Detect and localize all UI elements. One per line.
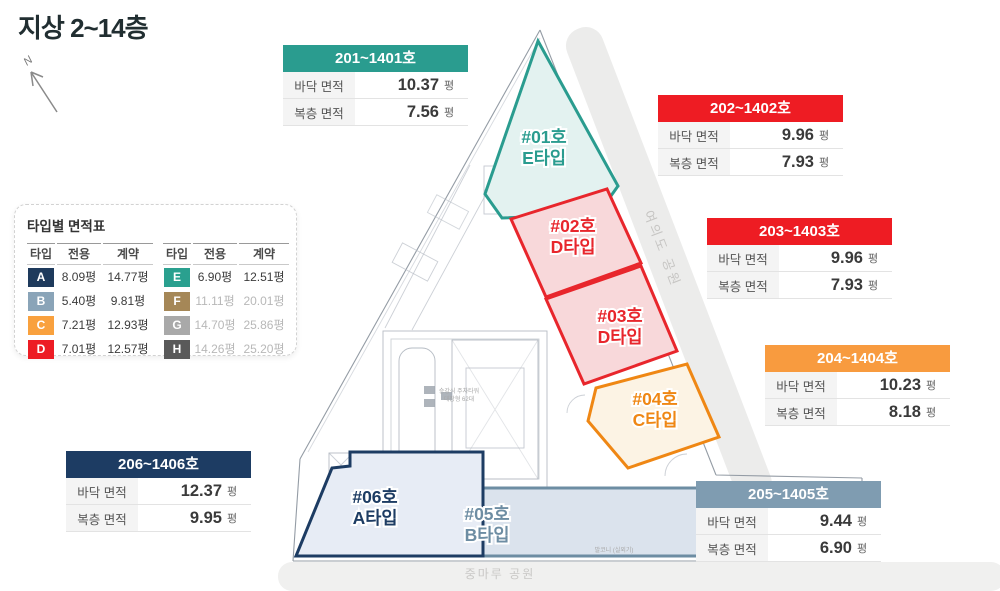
- type-chip-F: F: [164, 292, 190, 311]
- row-label: 바닥 면적: [66, 478, 138, 504]
- card-row: 복층 면적7.56평: [283, 99, 468, 126]
- card-row: 복층 면적7.93평: [658, 149, 843, 176]
- row-unit: 평: [444, 72, 468, 98]
- row-unit: 평: [857, 508, 881, 534]
- page-title: 지상 2~14층: [18, 8, 148, 45]
- col-type: 타입: [27, 243, 55, 265]
- row-label: 바닥 면적: [283, 72, 355, 98]
- row-label: 복층 면적: [696, 535, 768, 561]
- exclusive-area: 8.09평: [57, 265, 101, 289]
- row-label: 복층 면적: [283, 99, 355, 125]
- type-chip-cell: F: [163, 289, 191, 313]
- type-chip-cell: E: [163, 265, 191, 289]
- unit-card-title: 202~1402호: [658, 95, 843, 122]
- balcony-note: 발코니 (실외기): [595, 546, 634, 554]
- type-chip-cell: B: [27, 289, 55, 313]
- parking-note-line1: 승강식 주차타워: [439, 387, 479, 395]
- type-chip-cell: C: [27, 313, 55, 337]
- row-value: 10.37: [355, 72, 444, 98]
- card-row: 복층 면적9.95평: [66, 505, 251, 532]
- type-table-left: 타입 전용 계약 A 8.09평 14.77평 B 5.40평 9.81평 C …: [27, 243, 153, 361]
- exclusive-area: 11.11평: [193, 289, 237, 313]
- exclusive-area: 14.26평: [193, 337, 237, 361]
- contract-area: 25.20평: [239, 337, 289, 361]
- type-chip-cell: D: [27, 337, 55, 361]
- row-value: 12.37: [138, 478, 227, 504]
- row-label: 복층 면적: [66, 505, 138, 531]
- row-value: 8.18: [837, 399, 926, 425]
- unit-03-label: #03호D타입: [597, 306, 642, 347]
- row-label: 바닥 면적: [658, 122, 730, 148]
- row-unit: 평: [868, 272, 892, 298]
- row-unit: 평: [227, 505, 251, 531]
- unit-02-label: #02호D타입: [550, 216, 595, 257]
- card-row: 바닥 면적10.37평: [283, 72, 468, 99]
- type-chip-B: B: [28, 292, 54, 311]
- row-value: 9.96: [730, 122, 819, 148]
- exclusive-area: 5.40평: [57, 289, 101, 313]
- unit-card-title: 206~1406호: [66, 451, 251, 478]
- row-value: 9.96: [779, 245, 868, 271]
- unit-card-title: 204~1404호: [765, 345, 950, 372]
- unit-card-205: 205~1405호 바닥 면적9.44평 복층 면적6.90평: [696, 481, 881, 562]
- row-unit: 평: [868, 245, 892, 271]
- exclusive-area: 14.70평: [193, 313, 237, 337]
- row-value: 7.56: [355, 99, 444, 125]
- exclusive-area: 7.21평: [57, 313, 101, 337]
- row-unit: 평: [819, 122, 843, 148]
- contract-area: 12.93평: [103, 313, 153, 337]
- unit-card-title: 203~1403호: [707, 218, 892, 245]
- row-unit: 평: [444, 99, 468, 125]
- row-label: 바닥 면적: [696, 508, 768, 534]
- unit-card-206: 206~1406호 바닥 면적12.37평 복층 면적9.95평: [66, 451, 251, 532]
- row-unit: 평: [227, 478, 251, 504]
- card-row: 바닥 면적9.96평: [658, 122, 843, 149]
- type-area-table-title: 타입별 면적표: [27, 215, 284, 235]
- card-row: 바닥 면적9.44평: [696, 508, 881, 535]
- row-value: 9.44: [768, 508, 857, 534]
- col-contract: 계약: [239, 243, 289, 265]
- unit-card-title: 201~1401호: [283, 45, 468, 72]
- floorplan-infographic: 중마루 공원 여의도 공원: [0, 0, 1000, 591]
- unit-05-label: #05호B타입: [464, 504, 509, 545]
- contract-area: 25.86평: [239, 313, 289, 337]
- row-unit: 평: [926, 399, 950, 425]
- card-row: 복층 면적8.18평: [765, 399, 950, 426]
- row-unit: 평: [819, 149, 843, 175]
- unit-01-label: #01호E타입: [521, 127, 566, 168]
- row-label: 바닥 면적: [707, 245, 779, 271]
- row-value: 6.90: [768, 535, 857, 561]
- card-row: 복층 면적6.90평: [696, 535, 881, 562]
- north-arrow-icon: N: [21, 54, 57, 112]
- unit-card-title: 205~1405호: [696, 481, 881, 508]
- type-chip-D: D: [28, 340, 54, 359]
- unit-card-201: 201~1401호 바닥 면적10.37평 복층 면적7.56평: [283, 45, 468, 126]
- unit-card-204: 204~1404호 바닥 면적10.23평 복층 면적8.18평: [765, 345, 950, 426]
- col-exclusive: 전용: [57, 243, 101, 265]
- unit-card-202: 202~1402호 바닥 면적9.96평 복층 면적7.93평: [658, 95, 843, 176]
- row-label: 복층 면적: [707, 272, 779, 298]
- card-row: 바닥 면적12.37평: [66, 478, 251, 505]
- row-label: 복층 면적: [658, 149, 730, 175]
- unit-06-label: #06호A타입: [352, 487, 397, 528]
- contract-area: 12.51평: [239, 265, 289, 289]
- type-chip-G: G: [164, 316, 190, 335]
- contract-area: 20.01평: [239, 289, 289, 313]
- bottom-park-band: [278, 562, 1000, 591]
- row-value: 7.93: [779, 272, 868, 298]
- type-chip-E: E: [164, 268, 190, 287]
- col-exclusive: 전용: [193, 243, 237, 265]
- type-chip-cell: G: [163, 313, 191, 337]
- row-value: 7.93: [730, 149, 819, 175]
- card-row: 복층 면적7.93평: [707, 272, 892, 299]
- card-row: 바닥 면적10.23평: [765, 372, 950, 399]
- unit-card-203: 203~1403호 바닥 면적9.96평 복층 면적7.93평: [707, 218, 892, 299]
- exclusive-area: 6.90평: [193, 265, 237, 289]
- type-chip-cell: H: [163, 337, 191, 361]
- type-area-table: 타입별 면적표 타입 전용 계약 A 8.09평 14.77평 B 5.40평 …: [14, 204, 297, 356]
- col-type: 타입: [163, 243, 191, 265]
- row-value: 10.23: [837, 372, 926, 398]
- north-label: N: [21, 54, 35, 68]
- row-unit: 평: [857, 535, 881, 561]
- exclusive-area: 7.01평: [57, 337, 101, 361]
- row-label: 바닥 면적: [765, 372, 837, 398]
- bottom-park-label: 중마루 공원: [465, 567, 536, 581]
- row-unit: 평: [926, 372, 950, 398]
- type-chip-cell: A: [27, 265, 55, 289]
- row-value: 9.95: [138, 505, 227, 531]
- type-chip-H: H: [164, 340, 190, 359]
- type-chip-A: A: [28, 268, 54, 287]
- type-chip-C: C: [28, 316, 54, 335]
- contract-area: 12.57평: [103, 337, 153, 361]
- parking-note-line2: 대장형 62대: [444, 395, 474, 403]
- unit-04-label: #04호C타입: [632, 389, 677, 430]
- row-label: 복층 면적: [765, 399, 837, 425]
- contract-area: 14.77평: [103, 265, 153, 289]
- col-contract: 계약: [103, 243, 153, 265]
- type-table-right: 타입 전용 계약 E 6.90평 12.51평 F 11.11평 20.01평 …: [163, 243, 289, 361]
- card-row: 바닥 면적9.96평: [707, 245, 892, 272]
- contract-area: 9.81평: [103, 289, 153, 313]
